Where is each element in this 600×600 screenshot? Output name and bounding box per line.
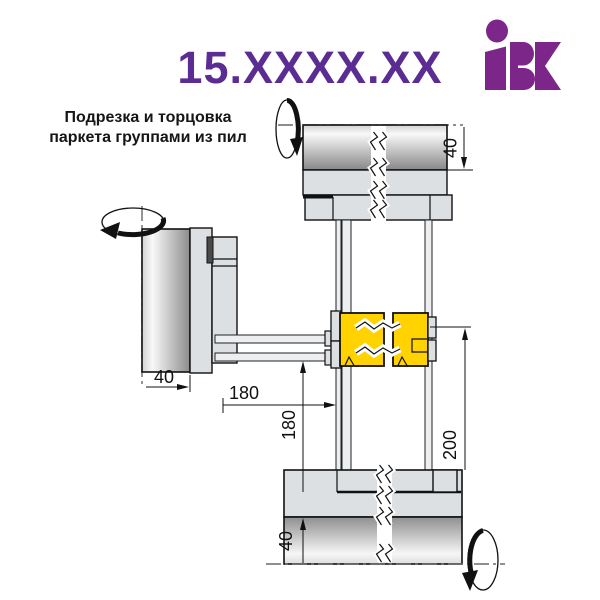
lower-arm <box>215 353 329 361</box>
dim-label-left-cylinder: 40 <box>154 367 174 387</box>
saw-groups <box>331 311 436 368</box>
left-cylinder <box>142 229 190 372</box>
lower-arm-bolt <box>325 350 331 365</box>
arrowhead <box>290 137 303 156</box>
dim-label-vertical: 180 <box>279 410 299 440</box>
technical-drawing: 40 40 180 180 200 40 <box>0 0 600 600</box>
dim-label-top-roller: 40 <box>441 138 461 158</box>
diagram-page: 15.XXXX.XX Подрезка и торцовка паркета г… <box>0 0 600 600</box>
top-feed-roller <box>278 125 463 222</box>
dimension-horizontal-180: 180 <box>223 383 336 413</box>
plate-notch <box>207 237 213 263</box>
upper-arm-bolt <box>325 331 331 346</box>
housing-insert-block <box>433 470 457 492</box>
dim-label-bottom-roller: 40 <box>276 531 296 551</box>
left-drive-cylinder <box>142 206 331 388</box>
left-plate-b <box>212 237 237 363</box>
upper-arm <box>215 335 329 343</box>
rotation-arrow-top <box>276 100 303 158</box>
rotation-arrow-bottom <box>462 530 498 591</box>
arrowhead <box>462 570 478 591</box>
clamp-right-lower <box>428 340 436 361</box>
bottom-roller-cylinder <box>284 517 462 564</box>
dim-label-span: 200 <box>440 430 460 460</box>
dim-label-horizontal: 180 <box>229 383 259 403</box>
